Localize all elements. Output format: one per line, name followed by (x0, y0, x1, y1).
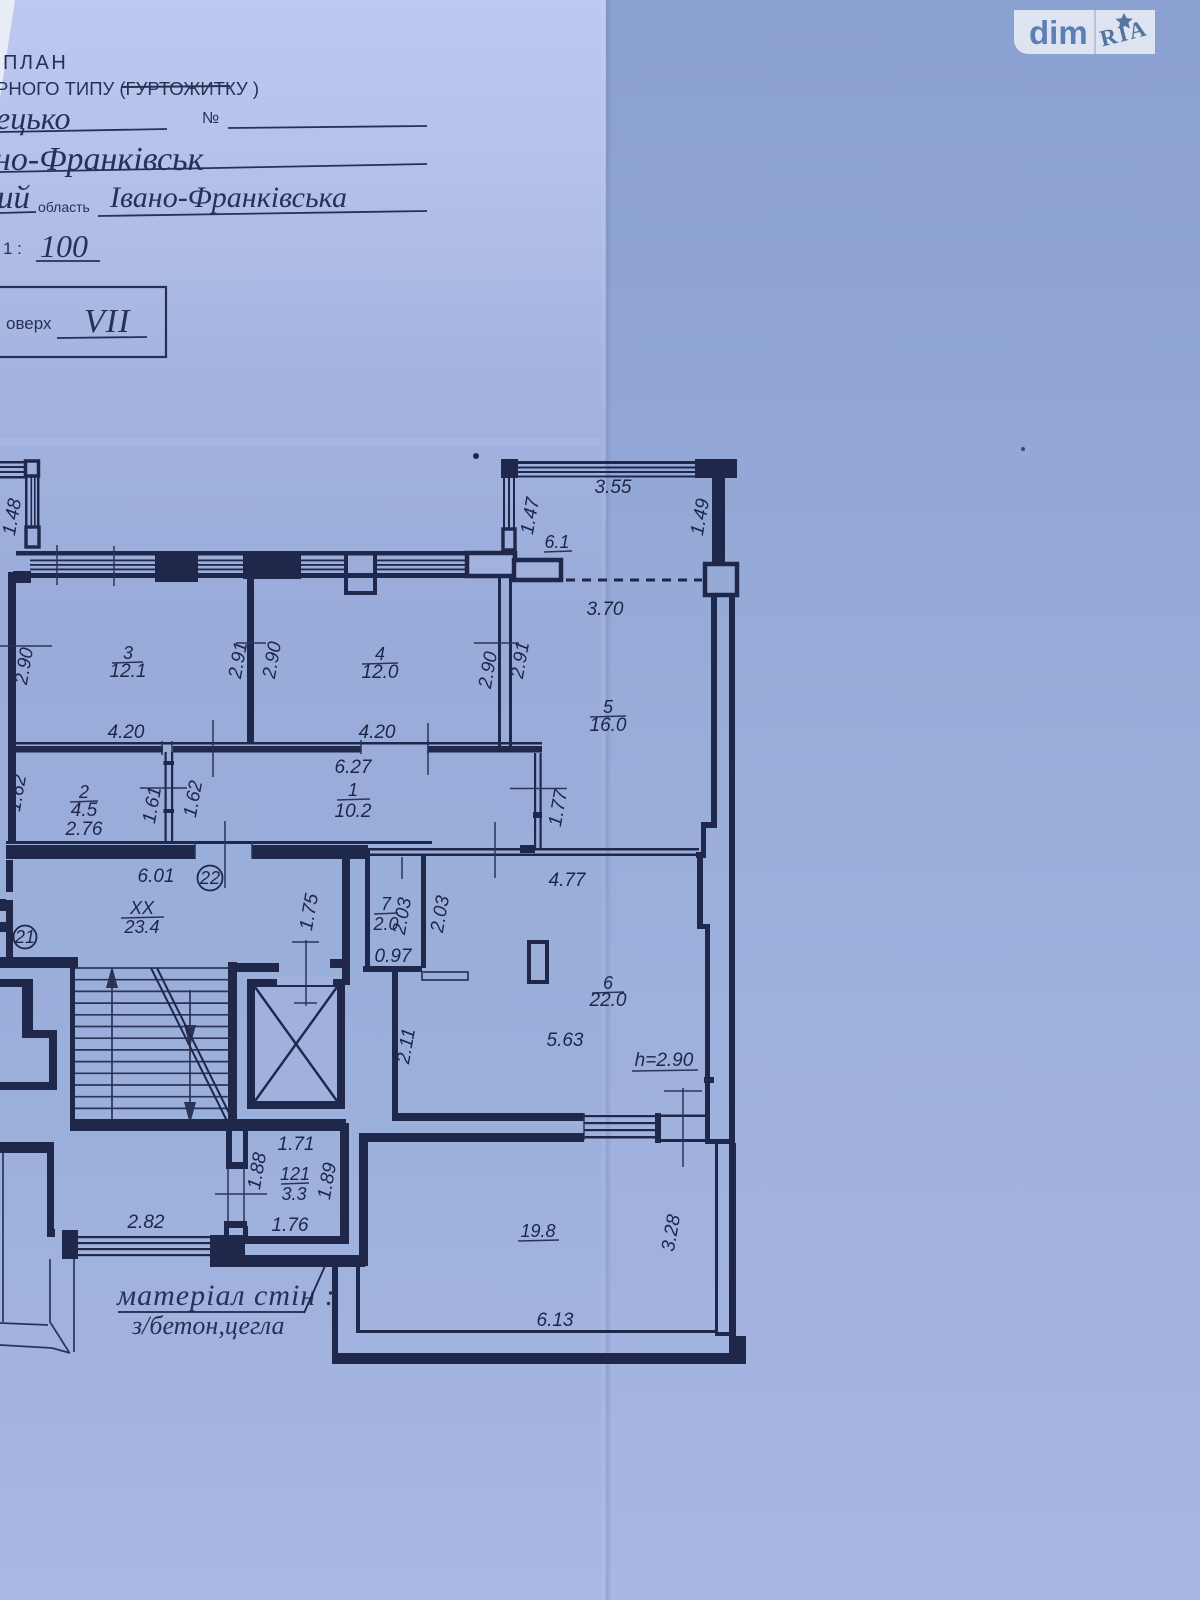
svg-text:2.90: 2.90 (259, 640, 286, 681)
svg-text:оверх: оверх (6, 314, 52, 333)
svg-text:1.62: 1.62 (180, 779, 207, 819)
svg-text:121: 121 (280, 1164, 310, 1184)
svg-text:2.03: 2.03 (427, 894, 454, 935)
svg-text:2.82: 2.82 (127, 1212, 165, 1233)
svg-text:22: 22 (199, 868, 220, 888)
svg-text:2.76: 2.76 (65, 819, 103, 840)
svg-text:7: 7 (381, 894, 392, 914)
svg-text:3.55: 3.55 (595, 477, 632, 498)
svg-text:5: 5 (603, 697, 614, 717)
svg-text:12.0: 12.0 (362, 662, 399, 683)
svg-text:3: 3 (123, 643, 133, 663)
svg-text:но-Франківськ: но-Франківськ (0, 141, 205, 178)
svg-text:10.2: 10.2 (335, 801, 372, 822)
svg-text:4.5: 4.5 (71, 800, 98, 821)
svg-text:1.76: 1.76 (272, 1215, 309, 1236)
svg-text:1.75: 1.75 (296, 892, 323, 932)
svg-text:2: 2 (78, 782, 89, 802)
svg-text:1.49: 1.49 (687, 497, 714, 537)
svg-text:12.1: 12.1 (110, 661, 147, 682)
svg-text:3.3: 3.3 (281, 1184, 306, 1204)
svg-text:100: 100 (40, 228, 88, 264)
svg-text:ПЛАН: ПЛАН (3, 52, 68, 74)
svg-text:Івано-Франківська: Івано-Франківська (109, 181, 347, 214)
svg-text:1.88: 1.88 (244, 1151, 271, 1191)
svg-text:22.0: 22.0 (589, 990, 627, 1011)
svg-text:0.97: 0.97 (375, 946, 413, 967)
svg-text:РНОГО ТИПУ (ГУРТОЖИТКУ ): РНОГО ТИПУ (ГУРТОЖИТКУ ) (0, 78, 259, 99)
svg-text:4.20: 4.20 (108, 722, 145, 743)
svg-text:1.71: 1.71 (278, 1134, 315, 1155)
svg-text:1.61: 1.61 (139, 785, 166, 825)
svg-text:3.70: 3.70 (587, 599, 624, 620)
svg-text:5.63: 5.63 (547, 1030, 584, 1051)
svg-text:матеріал стін :: матеріал стін : (116, 1279, 336, 1312)
svg-text:23.4: 23.4 (123, 917, 159, 937)
svg-text:21: 21 (14, 927, 35, 947)
svg-text:4: 4 (375, 644, 385, 664)
svg-text:16.0: 16.0 (590, 715, 627, 736)
svg-text:1.89: 1.89 (314, 1161, 341, 1201)
svg-text:ий: ий (0, 180, 31, 216)
svg-text:19.8: 19.8 (520, 1221, 555, 1241)
svg-text:область: область (38, 199, 90, 215)
svg-text:1 :: 1 : (3, 239, 22, 258)
svg-text:4.77: 4.77 (549, 870, 587, 891)
svg-text:6.1: 6.1 (544, 532, 569, 552)
svg-text:dim: dim (1029, 14, 1088, 51)
svg-text:h=2.90: h=2.90 (635, 1050, 694, 1071)
svg-text:1.48: 1.48 (0, 497, 26, 537)
svg-text:1.47: 1.47 (517, 495, 544, 536)
svg-text:3.28: 3.28 (658, 1213, 685, 1253)
svg-text:1: 1 (348, 780, 358, 800)
svg-text:4.20: 4.20 (359, 722, 396, 743)
svg-text:№: № (202, 110, 219, 127)
svg-text:6.13: 6.13 (537, 1310, 574, 1331)
svg-text:VII: VII (84, 303, 131, 340)
svg-text:1.77: 1.77 (545, 787, 572, 828)
svg-text:6.01: 6.01 (138, 866, 175, 887)
svg-text:XX: XX (129, 898, 155, 918)
svg-text:6.27: 6.27 (335, 757, 373, 778)
svg-text:2.03: 2.03 (389, 896, 416, 937)
svg-text:з/бетон,цегла: з/бетон,цегла (131, 1311, 284, 1340)
